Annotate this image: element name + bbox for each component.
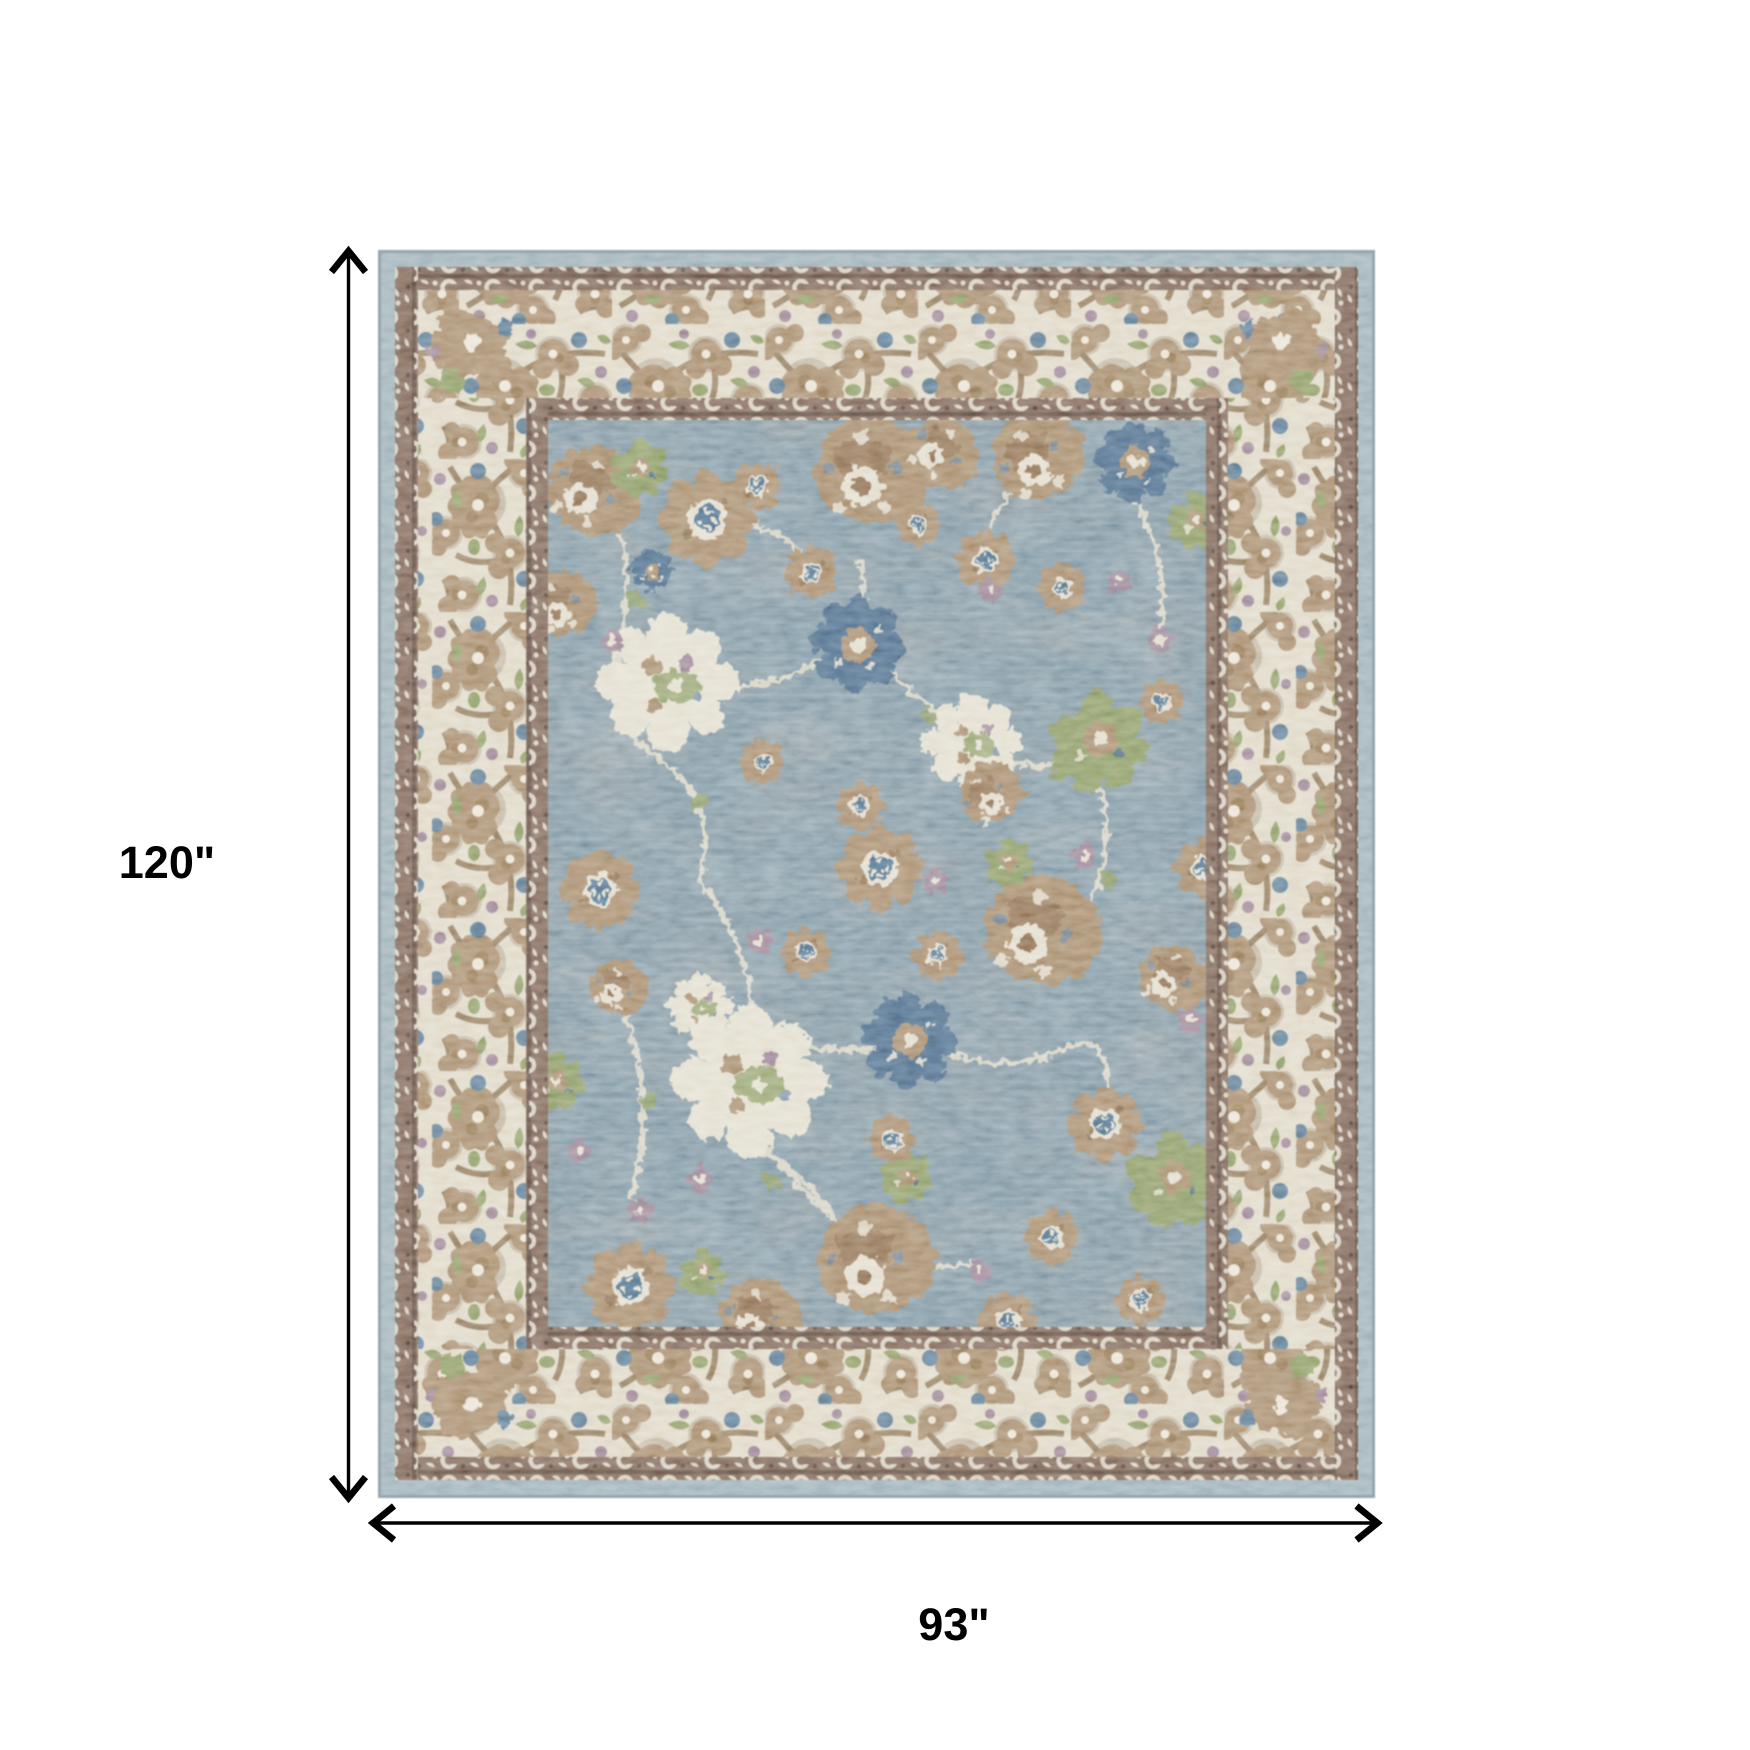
svg-text:120": 120" — [119, 837, 215, 888]
svg-text:93": 93" — [918, 1599, 989, 1650]
